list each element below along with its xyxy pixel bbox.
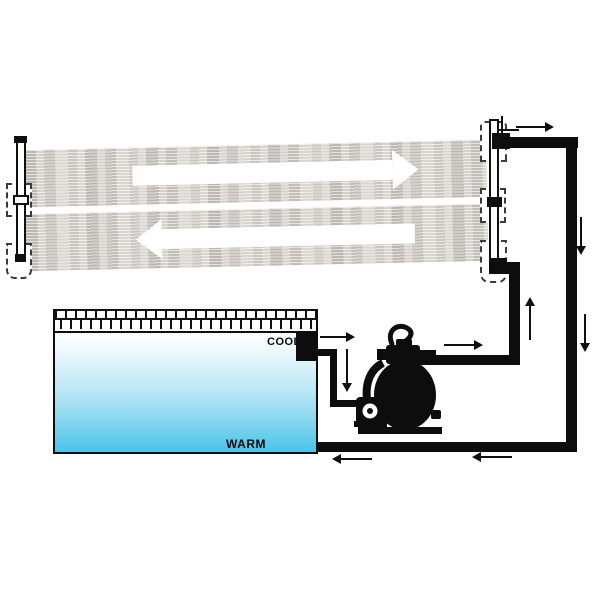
pool-tile-row-1 bbox=[55, 311, 316, 320]
flow-arrow-cool-outlet-flow bbox=[320, 332, 355, 342]
flow-arrow-panel-top-outlet bbox=[516, 122, 554, 132]
flow-arrow-supply-riser bbox=[525, 297, 535, 340]
flow-arrow-return-bottom-right bbox=[472, 452, 512, 462]
swimming-pool bbox=[53, 331, 318, 454]
flow-arrow-pump-discharge bbox=[444, 340, 483, 350]
panel-flow-right-arrow-head bbox=[392, 149, 419, 190]
multiport-valve bbox=[386, 345, 420, 364]
pipe-right-return bbox=[566, 137, 577, 452]
left-manifold-bottom-cap bbox=[15, 254, 26, 262]
pool-tile-coping bbox=[53, 309, 318, 333]
solar-pool-heater-diagram: COOL WARM bbox=[0, 0, 600, 600]
left-manifold-union bbox=[13, 195, 29, 205]
solar-panel bbox=[18, 120, 491, 276]
panel-flow-right-arrow-shaft bbox=[132, 160, 392, 186]
pipe-supply-riser bbox=[509, 263, 520, 365]
pipe-suction-drop bbox=[330, 349, 337, 407]
cool-label: COOL bbox=[267, 336, 301, 348]
left-manifold-top-cap bbox=[14, 136, 27, 143]
panel-flow-right-arrow bbox=[132, 149, 419, 195]
panel-flow-left-arrow-shaft bbox=[161, 223, 415, 249]
panel-flow-left-arrow-head bbox=[135, 219, 162, 260]
panel-flow-left-arrow bbox=[135, 213, 415, 259]
drain-port bbox=[431, 410, 441, 419]
flow-arrow-suction-drop bbox=[342, 349, 352, 392]
flow-arrow-return-bottom-left bbox=[332, 454, 372, 464]
right-manifold-union bbox=[487, 197, 502, 207]
sand-filter-pump bbox=[352, 322, 450, 436]
warm-label: WARM bbox=[226, 437, 266, 451]
flow-arrow-return-riser-upper bbox=[576, 217, 586, 255]
flow-arrow-return-riser-lower bbox=[580, 314, 590, 352]
pool-tile-row-2 bbox=[55, 320, 316, 329]
right-manifold-vent-line bbox=[501, 116, 503, 134]
